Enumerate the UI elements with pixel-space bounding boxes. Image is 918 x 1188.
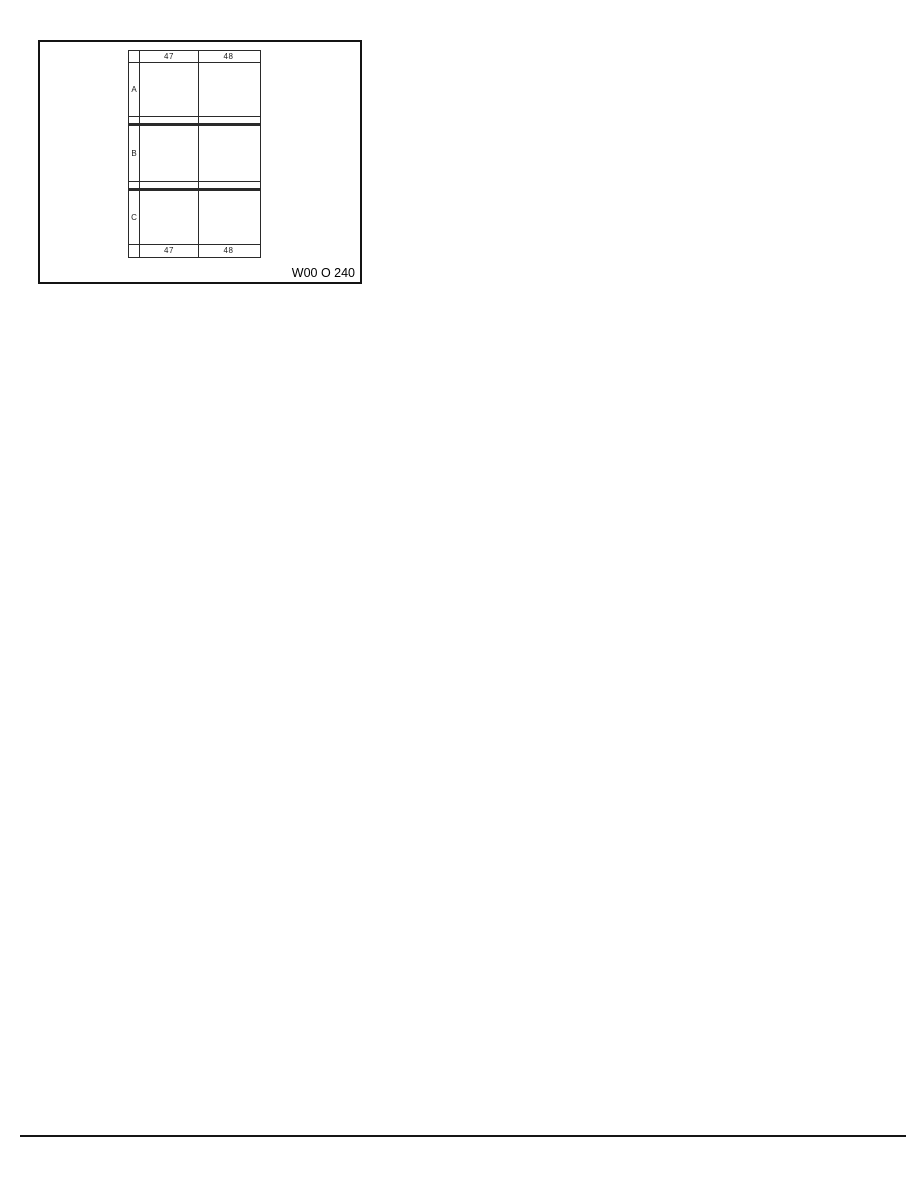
grid-header-row: 47 48: [129, 51, 260, 63]
grid-spacer-cell: [199, 117, 258, 123]
row-label: B: [129, 126, 139, 181]
grid-spacer-cell: [129, 182, 140, 188]
grid-column-header-cell: 47: [140, 51, 199, 62]
grid-column-header-cell: 48: [199, 51, 258, 62]
column-header-label: 48: [199, 51, 258, 62]
grid-spacer-cell: [199, 182, 258, 188]
row-label: C: [129, 191, 139, 244]
grid-column-footer-cell: 47: [140, 245, 199, 257]
grid-row-label-cell: C: [129, 191, 140, 244]
column-footer-label: 48: [199, 245, 258, 257]
grid-row-label-cell: B: [129, 126, 140, 181]
grid-spacer-row: [129, 117, 260, 126]
column-footer-label: 47: [140, 245, 198, 257]
grid-row-label-cell: A: [129, 63, 140, 116]
grid-cell: [140, 63, 199, 116]
figure-frame: 47 48 A B: [38, 40, 362, 284]
figure-caption: W00 O 240: [292, 267, 355, 280]
grid-corner-cell: [129, 245, 140, 257]
grid-cell: [140, 126, 199, 181]
page-divider: [20, 1135, 906, 1137]
coordinate-grid: 47 48 A B: [128, 50, 261, 258]
grid-footer-row: 47 48: [129, 245, 260, 257]
grid-section-row-b: B: [129, 126, 260, 182]
column-header-label: 47: [140, 51, 198, 62]
grid-spacer-row: [129, 182, 260, 191]
grid-section-row-a: A: [129, 63, 260, 117]
grid-spacer-cell: [140, 117, 199, 123]
grid-cell: [199, 63, 258, 116]
grid-cell: [199, 126, 258, 181]
grid-spacer-cell: [140, 182, 199, 188]
manual-page: { "figure": { "caption": "W00 O 240", "g…: [0, 0, 918, 1188]
grid-cell: [199, 191, 258, 244]
row-label: A: [129, 63, 139, 116]
grid-corner-cell: [129, 51, 140, 62]
grid-column-footer-cell: 48: [199, 245, 258, 257]
grid-section-row-c: C: [129, 191, 260, 245]
grid-cell: [140, 191, 199, 244]
grid-spacer-cell: [129, 117, 140, 123]
